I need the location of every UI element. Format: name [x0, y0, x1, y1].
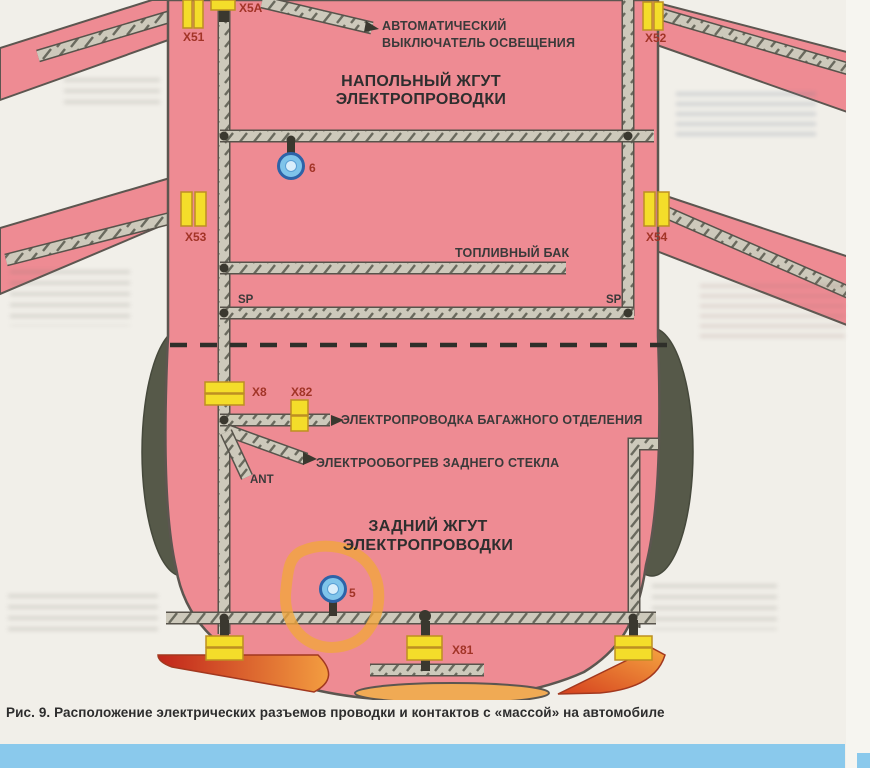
junction-dot: [624, 132, 633, 141]
ground-contact-6: [279, 154, 304, 179]
connector-x53-label: X53: [185, 230, 207, 244]
connector-x81: [407, 636, 442, 660]
x81-stem-bottom: [421, 659, 430, 671]
trunk-wiring-label: ЭЛЕКТРОПРОВОДКА БАГАЖНОГО ОТДЕЛЕНИЯ: [341, 413, 643, 427]
junction-dot: [220, 416, 229, 425]
splice-left-label: SP: [238, 294, 254, 306]
x81-stem-top: [421, 621, 430, 637]
floor-harness-heading: ЭЛЕКТРОПРОВОДКИ: [336, 91, 506, 108]
connector-x82: [291, 400, 308, 431]
connector-rear-left: [206, 636, 243, 660]
footer-blue-bar-fragment: [857, 753, 870, 768]
junction-dot: [629, 614, 638, 623]
rear-left-connector-stem: [220, 620, 229, 637]
figure-caption: Рис. 9. Расположение электрических разъе…: [6, 705, 866, 720]
junction-dot: [220, 614, 229, 623]
connector-x52-label: X52: [645, 31, 667, 45]
fuel-tank-label: ТОПЛИВНЫЙ БАК: [455, 245, 569, 260]
junction-dot: [220, 132, 229, 141]
connector-x8: [205, 382, 244, 405]
antenna-label: ANT: [250, 474, 274, 486]
rear-window-heater-label: ЭЛЕКТРООБОГРЕВ ЗАДНЕГО СТЕКЛА: [316, 456, 559, 470]
ground-contact-6-label: 6: [309, 161, 316, 175]
footer-blue-bar: [0, 744, 845, 768]
junction-dot: [419, 610, 431, 622]
connector-x51-label: X51: [183, 30, 205, 44]
junction-dot: [220, 309, 229, 318]
connector-x5a: [211, 0, 235, 10]
page-right-margin: [846, 0, 870, 768]
x5a-stem: [219, 10, 229, 22]
underbody-wiring-diagram: АВТОМАТИЧЕСКИЙ ВЫКЛЮЧАТЕЛЬ ОСВЕЩЕНИЯ НАП…: [0, 0, 870, 700]
connector-rear-right: [615, 636, 652, 660]
mid-right-sill-arm: [654, 192, 870, 334]
connector-x8-label: X8: [252, 385, 267, 399]
connector-x82-label: X82: [291, 385, 313, 399]
rear-harness-heading: ЗАДНИЙ ЖГУТ: [368, 516, 487, 535]
front-left-sill-arm: [0, 0, 174, 100]
rear-bumper-pad: [355, 683, 549, 700]
junction-dot: [624, 309, 633, 318]
scanned-manual-page: АВТОМАТИЧЕСКИЙ ВЫКЛЮЧАТЕЛЬ ОСВЕЩЕНИЯ НАП…: [0, 0, 870, 768]
connector-x81-label: X81: [452, 643, 474, 657]
floor-harness-heading: НАПОЛЬНЫЙ ЖГУТ: [341, 71, 501, 90]
auto-light-switch-label: АВТОМАТИЧЕСКИЙ: [382, 18, 507, 33]
junction-dot: [287, 136, 296, 145]
ground-contact-5-label: 5: [349, 586, 356, 600]
rear-harness-heading: ЭЛЕКТРОПРОВОДКИ: [343, 537, 513, 554]
rear-right-connector-stem: [629, 620, 638, 637]
splice-right-label: SP: [606, 294, 622, 306]
ground-contact-5: [321, 577, 346, 602]
auto-light-switch-label: ВЫКЛЮЧАТЕЛЬ ОСВЕЩЕНИЯ: [382, 36, 575, 50]
junction-dot: [220, 264, 229, 273]
connector-x5a-label: X5A: [239, 1, 263, 15]
connector-x54-label: X54: [646, 230, 668, 244]
